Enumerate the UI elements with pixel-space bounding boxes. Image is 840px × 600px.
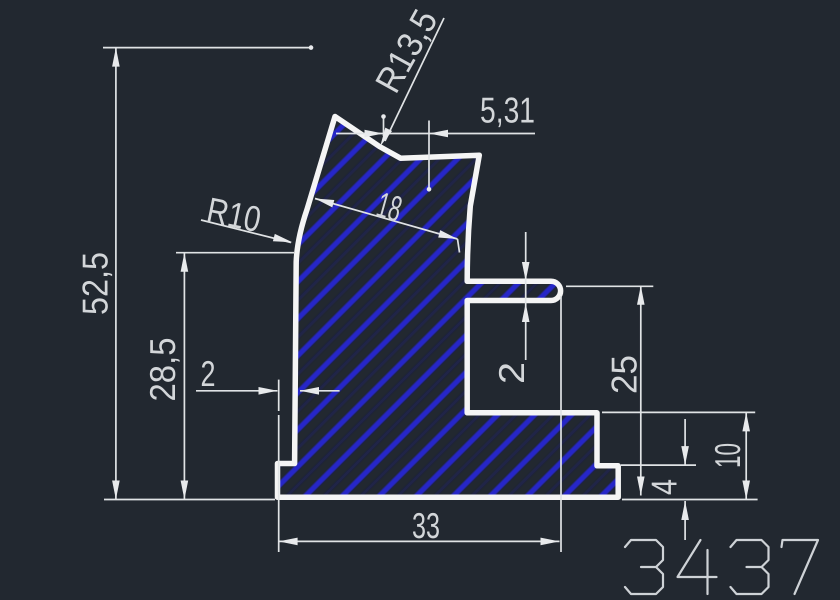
svg-text:10: 10 (707, 443, 748, 468)
svg-text:2: 2 (491, 362, 532, 384)
svg-text:R10: R10 (203, 189, 264, 240)
svg-text:4: 4 (644, 479, 685, 495)
svg-text:25: 25 (604, 355, 645, 394)
svg-text:2: 2 (201, 353, 216, 394)
svg-text:R13,5: R13,5 (367, 2, 446, 99)
svg-text:52,5: 52,5 (75, 252, 116, 315)
svg-text:33: 33 (412, 505, 440, 546)
svg-text:5,31: 5,31 (480, 90, 535, 131)
svg-text:28,5: 28,5 (142, 338, 183, 402)
